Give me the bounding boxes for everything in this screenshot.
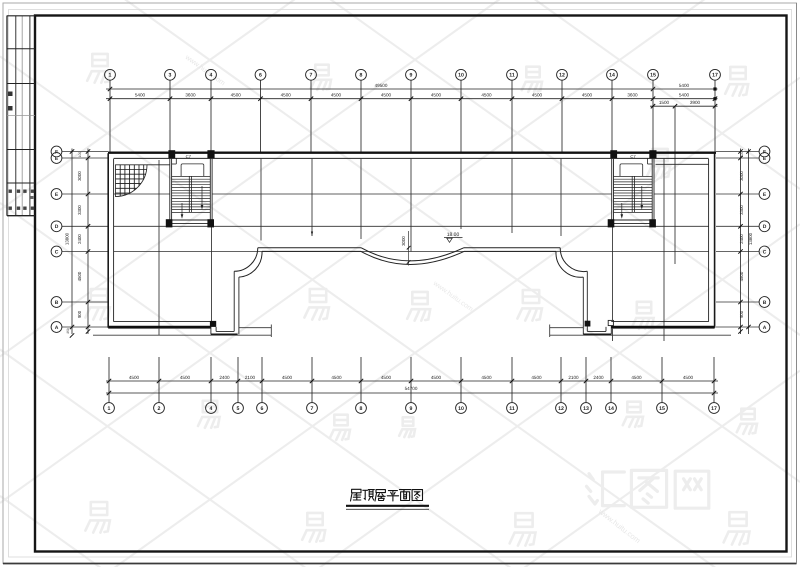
svg-text:17: 17 <box>711 406 717 412</box>
svg-text:3300: 3300 <box>739 205 744 215</box>
svg-text:4500: 4500 <box>631 375 642 380</box>
svg-text:C7: C7 <box>186 154 192 159</box>
svg-text:5400: 5400 <box>679 93 690 98</box>
svg-text:3600: 3600 <box>185 93 196 98</box>
svg-text:13: 13 <box>583 406 589 412</box>
svg-text:1: 1 <box>108 406 111 412</box>
svg-text:2400: 2400 <box>77 234 82 244</box>
svg-text:C: C <box>763 249 767 255</box>
svg-text:8: 8 <box>360 73 363 79</box>
svg-text:11: 11 <box>509 73 515 79</box>
svg-text:10: 10 <box>458 73 464 79</box>
svg-text:900: 900 <box>77 310 82 318</box>
svg-text:49500: 49500 <box>375 83 388 88</box>
svg-text:4: 4 <box>210 406 213 412</box>
svg-text:3600: 3600 <box>627 93 638 98</box>
svg-text:6: 6 <box>259 73 262 79</box>
svg-text:A: A <box>763 325 767 331</box>
svg-text:18.00: 18.00 <box>447 232 460 238</box>
svg-text:3000: 3000 <box>401 236 406 246</box>
svg-text:2100: 2100 <box>568 375 579 380</box>
svg-text:4500: 4500 <box>381 93 392 98</box>
svg-text:4500: 4500 <box>282 375 293 380</box>
svg-text:10: 10 <box>458 406 464 412</box>
svg-text:9: 9 <box>410 73 413 79</box>
svg-text:5: 5 <box>237 406 240 412</box>
svg-text:13800: 13800 <box>65 232 70 245</box>
svg-text:1: 1 <box>109 73 112 79</box>
svg-text:D: D <box>55 224 59 230</box>
svg-text:2400: 2400 <box>739 234 744 244</box>
svg-text:100: 100 <box>78 152 82 158</box>
svg-text:54700: 54700 <box>405 386 418 391</box>
svg-text:6: 6 <box>261 406 264 412</box>
svg-text:250: 250 <box>66 328 70 334</box>
svg-text:8: 8 <box>360 406 363 412</box>
svg-text:4500: 4500 <box>431 375 442 380</box>
svg-text:4500: 4500 <box>180 375 191 380</box>
svg-text:3000: 3000 <box>739 171 744 181</box>
svg-text:4500: 4500 <box>77 271 82 281</box>
svg-text:4500: 4500 <box>532 93 543 98</box>
svg-text:15: 15 <box>659 406 665 412</box>
svg-text:5400: 5400 <box>679 83 690 88</box>
svg-text:4: 4 <box>210 73 213 79</box>
svg-text:5400: 5400 <box>135 93 146 98</box>
svg-text:C: C <box>55 249 59 255</box>
svg-text:4500: 4500 <box>431 93 442 98</box>
svg-text:13800: 13800 <box>748 232 753 245</box>
svg-text:4500: 4500 <box>531 375 542 380</box>
svg-text:3000: 3000 <box>77 171 82 181</box>
svg-text:2400: 2400 <box>219 375 230 380</box>
svg-text:4500: 4500 <box>331 93 342 98</box>
svg-text:2: 2 <box>158 406 161 412</box>
svg-text:900: 900 <box>739 310 744 318</box>
svg-text:C7: C7 <box>630 154 636 159</box>
svg-text:B: B <box>763 300 767 306</box>
svg-text:2100: 2100 <box>245 375 256 380</box>
svg-text:4500: 4500 <box>739 271 744 281</box>
svg-text:14: 14 <box>609 73 615 79</box>
svg-text:3: 3 <box>169 73 172 79</box>
svg-text:12: 12 <box>558 406 564 412</box>
svg-text:4500: 4500 <box>481 375 492 380</box>
svg-text:100: 100 <box>740 152 744 158</box>
svg-text:17: 17 <box>712 73 718 79</box>
svg-text:3300: 3300 <box>77 205 82 215</box>
svg-text:4500: 4500 <box>231 93 242 98</box>
svg-text:4500: 4500 <box>481 93 492 98</box>
svg-text:15: 15 <box>650 73 656 79</box>
svg-text:2400: 2400 <box>593 375 604 380</box>
svg-text:4500: 4500 <box>281 93 292 98</box>
svg-text:4500: 4500 <box>331 375 342 380</box>
svg-text:1500: 1500 <box>659 100 670 105</box>
svg-text:7: 7 <box>310 73 313 79</box>
svg-text:B: B <box>55 300 59 306</box>
svg-text:4500: 4500 <box>129 375 140 380</box>
svg-text:3900: 3900 <box>690 100 701 105</box>
svg-text:11: 11 <box>509 406 515 412</box>
svg-text:7: 7 <box>311 406 314 412</box>
svg-text:12: 12 <box>559 73 565 79</box>
svg-text:4500: 4500 <box>381 375 392 380</box>
svg-text:D: D <box>763 224 767 230</box>
svg-text:4500: 4500 <box>582 93 593 98</box>
svg-text:A: A <box>55 325 59 331</box>
svg-text:4500: 4500 <box>683 375 694 380</box>
svg-text:14: 14 <box>608 406 614 412</box>
svg-text:9: 9 <box>410 406 413 412</box>
